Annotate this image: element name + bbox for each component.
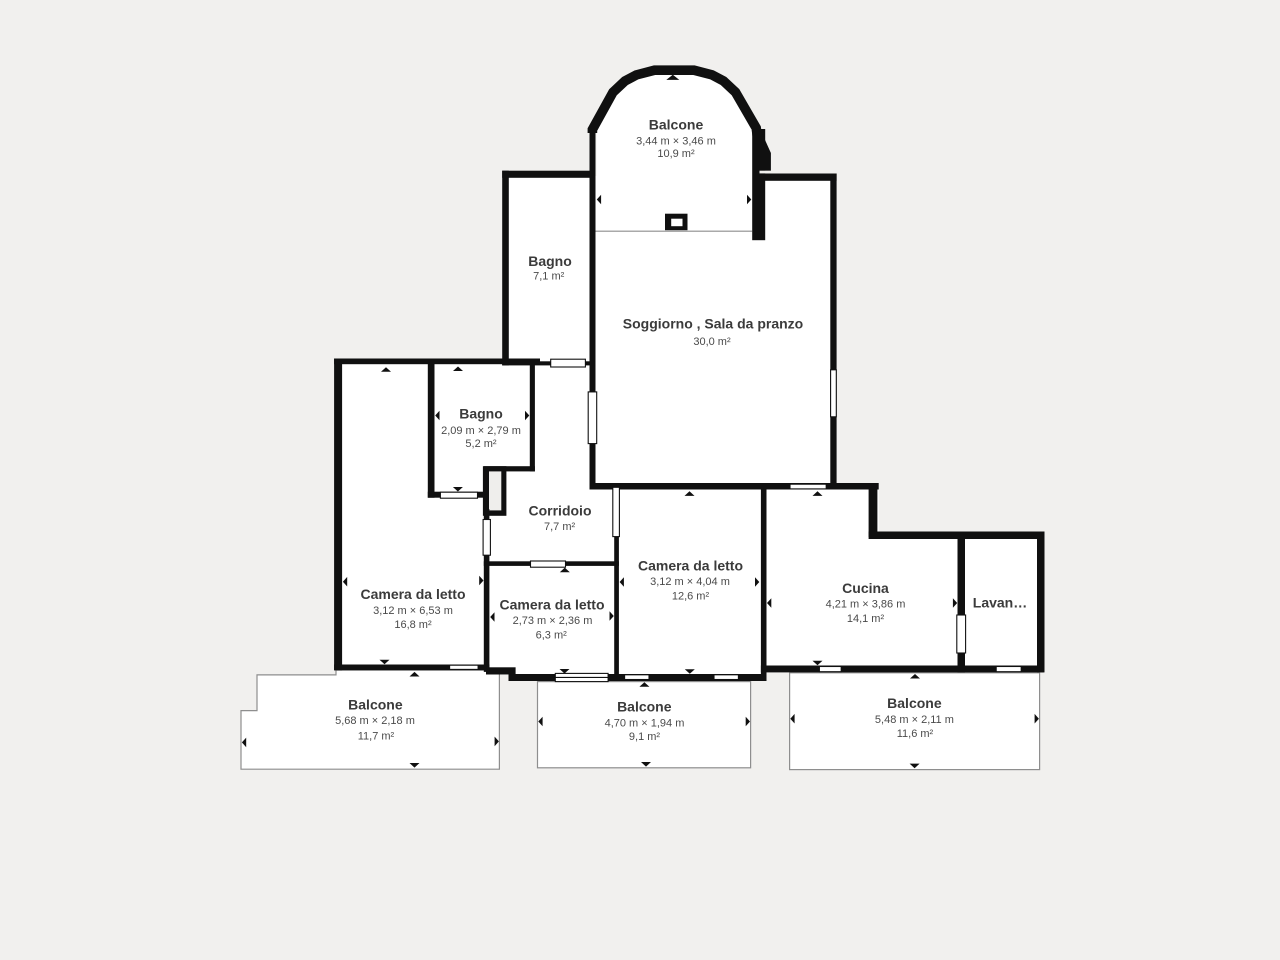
svg-text:Camera da letto: Camera da letto xyxy=(360,586,465,602)
svg-text:Camera da letto: Camera da letto xyxy=(638,558,743,574)
svg-text:3,12 m × 6,53 m: 3,12 m × 6,53 m xyxy=(373,605,453,617)
svg-text:3,12 m × 4,04 m: 3,12 m × 4,04 m xyxy=(650,576,730,588)
svg-text:3,44 m × 3,46 m: 3,44 m × 3,46 m xyxy=(636,136,716,148)
svg-text:16,8 m²: 16,8 m² xyxy=(394,619,432,631)
svg-text:10,9 m²: 10,9 m² xyxy=(657,148,695,160)
svg-text:Balcone: Balcone xyxy=(617,698,672,714)
svg-text:4,70 m × 1,94 m: 4,70 m × 1,94 m xyxy=(605,718,685,730)
svg-text:Soggiorno , Sala da pranzo: Soggiorno , Sala da pranzo xyxy=(623,316,803,332)
svg-text:4,21 m × 3,86 m: 4,21 m × 3,86 m xyxy=(826,599,906,611)
svg-text:7,7 m²: 7,7 m² xyxy=(544,521,576,533)
svg-text:14,1 m²: 14,1 m² xyxy=(847,613,885,625)
svg-text:30,0 m²: 30,0 m² xyxy=(693,336,731,348)
svg-text:Bagno: Bagno xyxy=(528,253,572,269)
svg-text:2,09 m × 2,79 m: 2,09 m × 2,79 m xyxy=(441,425,521,437)
svg-text:2,73 m × 2,36 m: 2,73 m × 2,36 m xyxy=(513,615,593,627)
svg-text:5,48 m × 2,11 m: 5,48 m × 2,11 m xyxy=(875,714,954,726)
svg-text:9,1 m²: 9,1 m² xyxy=(629,731,661,743)
svg-text:Bagno: Bagno xyxy=(459,406,503,422)
svg-text:Camera da letto: Camera da letto xyxy=(499,596,604,612)
svg-text:11,6 m²: 11,6 m² xyxy=(897,728,934,740)
svg-text:6,3 m²: 6,3 m² xyxy=(536,629,568,641)
svg-text:Cucina: Cucina xyxy=(842,580,889,596)
svg-text:Balcone: Balcone xyxy=(649,117,704,133)
svg-text:12,6 m²: 12,6 m² xyxy=(672,591,710,603)
svg-text:Balcone: Balcone xyxy=(348,697,403,713)
svg-text:5,68 m × 2,18 m: 5,68 m × 2,18 m xyxy=(335,715,415,727)
svg-text:5,2 m²: 5,2 m² xyxy=(465,438,497,450)
svg-text:Balcone: Balcone xyxy=(887,695,942,711)
svg-text:Corridoio: Corridoio xyxy=(529,503,592,519)
svg-text:Lavan…: Lavan… xyxy=(973,595,1027,611)
svg-text:11,7 m²: 11,7 m² xyxy=(358,730,395,742)
svg-text:7,1 m²: 7,1 m² xyxy=(533,271,565,283)
